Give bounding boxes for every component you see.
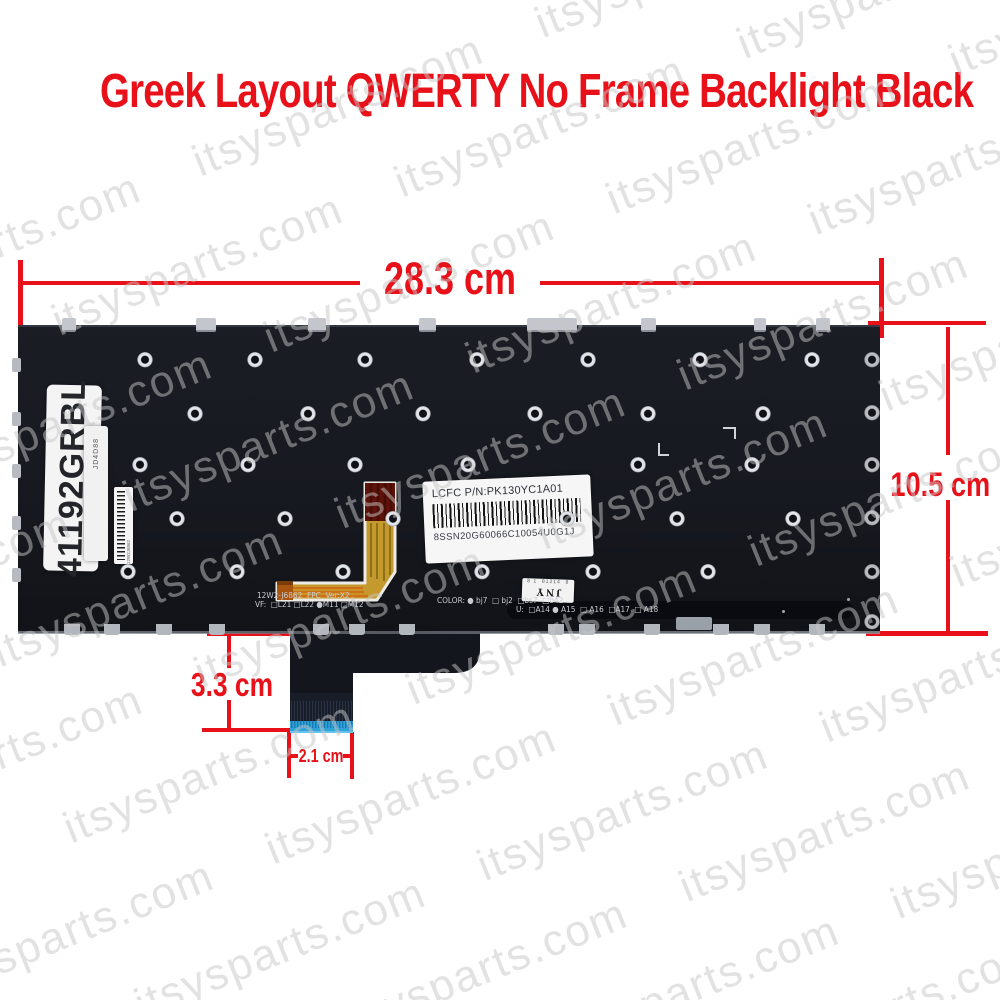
mounting-tab xyxy=(308,318,326,332)
screw-rivet xyxy=(229,564,245,580)
mounting-tab xyxy=(641,318,656,332)
screw-rivet xyxy=(785,511,801,527)
print-color-line: COLOR: ● bj7 □ bj2 □bs7 □b42 xyxy=(437,596,563,605)
screw-rivet xyxy=(300,406,316,422)
screw-rivet xyxy=(347,457,363,473)
screw-rivet xyxy=(415,406,431,422)
edge-rivet xyxy=(864,457,880,473)
mounting-hook xyxy=(548,624,564,635)
dimension-line xyxy=(227,700,231,731)
vertical-barcode-sticker: 12W2J6862 xyxy=(114,487,133,564)
barcode xyxy=(432,498,581,528)
dimension-line xyxy=(343,754,354,758)
keyboard-ribbon-cable xyxy=(288,631,488,742)
side-sticker-text: JD4D88 xyxy=(93,438,100,469)
screw-rivet xyxy=(669,511,685,527)
dimension-line xyxy=(946,500,950,631)
mounting-tab xyxy=(12,412,21,426)
screw-rivet xyxy=(692,352,708,368)
dimension-line xyxy=(946,327,950,455)
edge-rivet xyxy=(864,564,880,580)
mounting-tab xyxy=(12,516,21,530)
side-sticker: JD4D88 xyxy=(84,426,108,561)
dust-speck xyxy=(782,610,785,613)
screw-rivet xyxy=(474,564,490,580)
mounting-tab xyxy=(754,318,766,332)
screw-rivet xyxy=(137,352,153,368)
alignment-corner-marks xyxy=(659,428,735,455)
dimension-tick xyxy=(868,321,986,325)
dimension-cable-width-label: 2.1 cm xyxy=(299,746,344,767)
mounting-tab xyxy=(419,318,436,332)
mounting-hook xyxy=(809,624,825,635)
dimension-line xyxy=(227,633,231,668)
mounting-hook xyxy=(156,624,172,635)
dimension-tick xyxy=(866,631,988,636)
mounting-hook xyxy=(579,624,595,635)
edge-rivet xyxy=(864,510,880,526)
screw-rivet xyxy=(585,564,601,580)
print-vf-line: VF: □L21 □L22 ●M11 □M12 xyxy=(255,600,364,609)
product-image: Greek Layout QWERTY No Frame Backlight B… xyxy=(0,0,1000,1000)
screw-rivet xyxy=(335,564,351,580)
screw-rivet xyxy=(580,352,596,368)
mounting-hook xyxy=(104,624,120,635)
screw-rivet xyxy=(132,457,148,473)
mounting-hook xyxy=(754,624,770,635)
barcode-text: 12W2J6862 xyxy=(126,493,131,564)
edge-rivet xyxy=(864,405,880,421)
dimension-width-label: 28.3 cm xyxy=(378,253,522,305)
mounting-hook xyxy=(209,624,225,635)
edge-rivet xyxy=(864,352,880,368)
screw-rivet xyxy=(187,406,203,422)
mounting-hook xyxy=(313,624,329,635)
mounting-hook xyxy=(349,624,365,635)
screw-rivet xyxy=(277,511,293,527)
screw-rivet xyxy=(630,457,646,473)
screw-rivet xyxy=(804,352,820,368)
mounting-hook xyxy=(64,624,80,635)
mounting-tab xyxy=(12,464,21,478)
mounting-tab xyxy=(62,318,76,332)
mounting-tab xyxy=(816,318,830,332)
screw-rivet xyxy=(755,406,771,422)
backlight-flex-cable xyxy=(18,325,880,633)
dimension-line xyxy=(540,281,883,285)
screw-rivet xyxy=(357,352,373,368)
dimension-line xyxy=(287,754,298,758)
mounting-hook xyxy=(713,624,729,635)
dimension-height-label: 10.5 cm xyxy=(890,466,989,505)
screw-rivet xyxy=(559,511,575,527)
screw-rivet xyxy=(744,457,760,473)
dimension-line xyxy=(20,281,360,285)
dust-speck xyxy=(847,598,850,601)
mounting-hook xyxy=(644,624,660,635)
manufacturer-pn: LCFC P/N:PK130YC1A01 xyxy=(432,482,582,501)
screw-rivet xyxy=(460,457,476,473)
screw-rivet xyxy=(700,564,716,580)
screw-rivet xyxy=(469,352,485,368)
screw-rivet xyxy=(640,406,656,422)
screw-rivet xyxy=(240,457,256,473)
screw-rivet xyxy=(120,564,136,580)
print-u-line: U: □A14 ● A15 □ A16 □A17 □ A18 xyxy=(516,605,658,614)
mounting-tab xyxy=(527,318,577,332)
mounting-bracket xyxy=(676,617,712,630)
barcode xyxy=(117,491,125,560)
print-fpc-line: 12W2-J6862 FPC Ver:X2 xyxy=(257,591,350,600)
mounting-tab xyxy=(196,318,216,332)
edge-rivet xyxy=(864,614,880,630)
mounting-hook xyxy=(399,624,415,635)
screw-rivet xyxy=(385,511,401,527)
dimension-tick xyxy=(202,728,292,732)
screw-rivet xyxy=(247,352,263,368)
screw-rivet xyxy=(527,406,543,422)
dimension-cable-length-label: 3.3 cm xyxy=(190,666,273,704)
page-title: Greek Layout QWERTY No Frame Backlight B… xyxy=(100,64,900,119)
mounting-tab xyxy=(12,568,21,582)
screw-rivet xyxy=(169,511,185,527)
manufacturer-serial: 8SSN20G60066C10054U0G1J xyxy=(434,526,584,544)
keyboard-back-plate: 41192GRBL JD4D88 12W2J6862 LCFC P/N:PK13… xyxy=(18,325,880,633)
mounting-tab xyxy=(12,358,21,372)
